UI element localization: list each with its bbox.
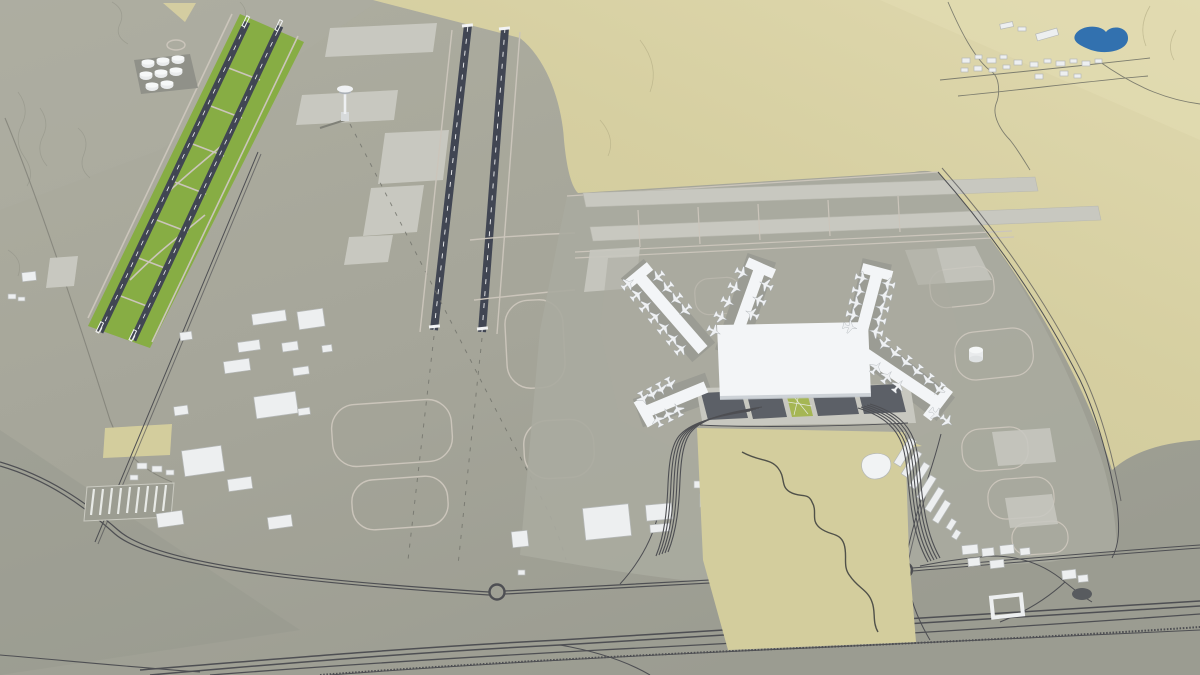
vignette-overlay xyxy=(0,0,1200,675)
render-viewport[interactable]: 3D aerial rendering of an airport master… xyxy=(0,0,1200,675)
airport-3d-scene: 3D aerial rendering of an airport master… xyxy=(0,0,1200,675)
